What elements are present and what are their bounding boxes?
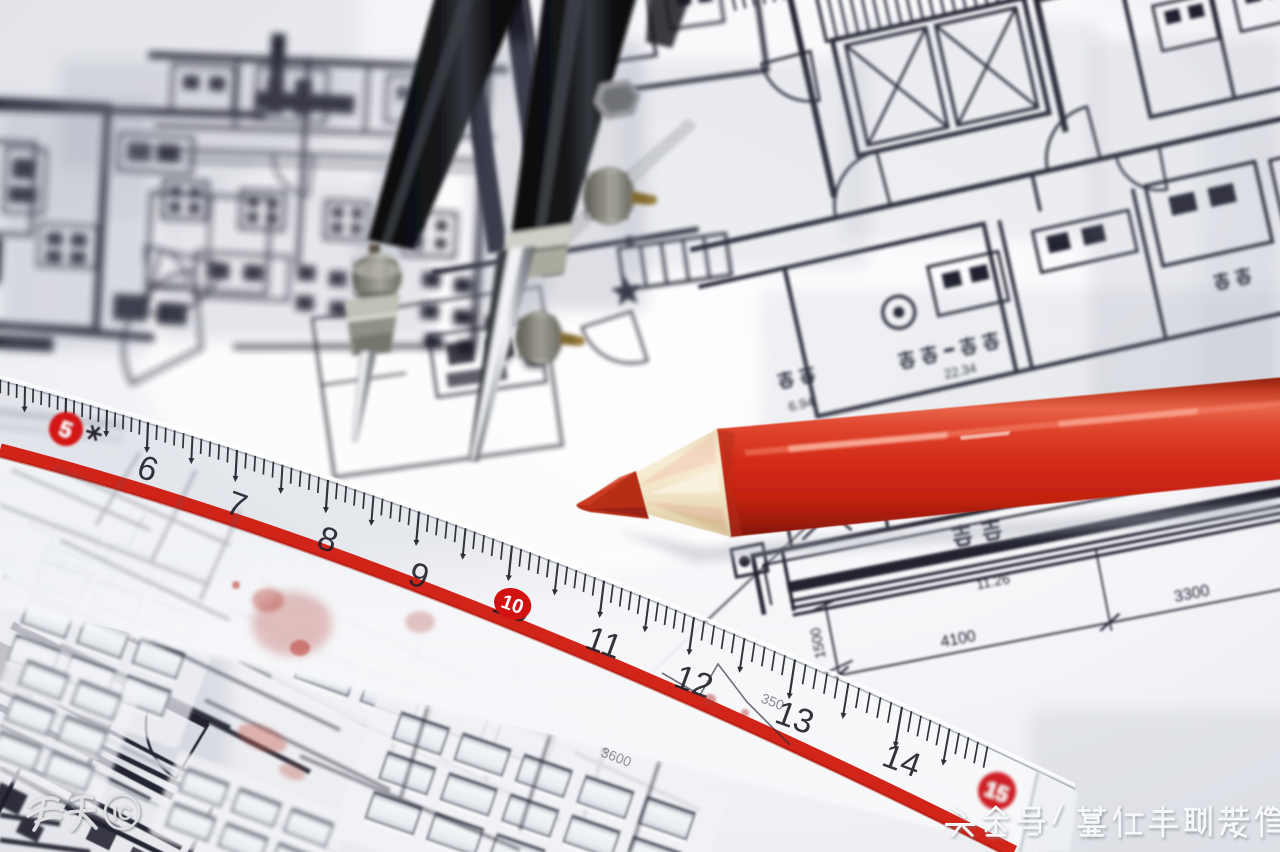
svg-text:IC: IC — [112, 803, 132, 825]
